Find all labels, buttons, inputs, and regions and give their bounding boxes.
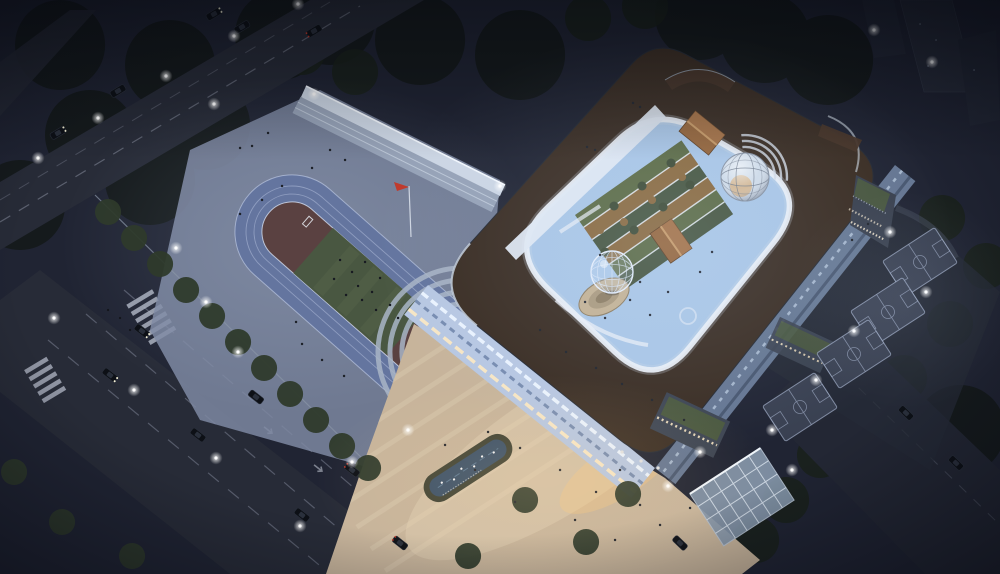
atmosphere — [0, 0, 1000, 574]
campus-night-rendering — [0, 0, 1000, 574]
rendering-canvas — [0, 0, 1000, 574]
vignette — [0, 0, 1000, 574]
